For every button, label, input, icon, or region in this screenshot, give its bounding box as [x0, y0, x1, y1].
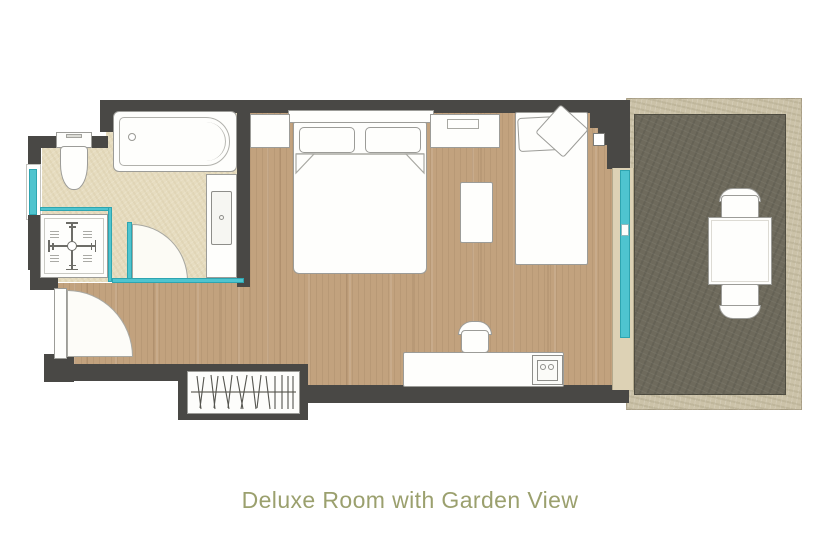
bathroom-window-glass: [29, 169, 37, 215]
wall-bathroom-divider: [237, 110, 250, 287]
minibar-cup-icon: [540, 364, 546, 370]
minibar-cup-icon: [548, 364, 554, 370]
valve-label-marks: [50, 231, 59, 238]
bathroom-door-leaf: [127, 222, 132, 282]
shower-glass-side: [108, 207, 112, 282]
hanger-rail-icon: [188, 372, 299, 413]
wall-niche: [593, 133, 605, 146]
minibar-sink-basin: [537, 360, 558, 381]
wall-right-step-a: [590, 100, 630, 128]
desk-chair-seat: [461, 330, 489, 353]
entrance-door-leaf: [54, 288, 67, 359]
ottoman: [460, 182, 493, 243]
console-tray: [447, 119, 479, 129]
wall-right-step-c: [607, 143, 630, 169]
plan-caption: Deluxe Room with Garden View: [0, 487, 820, 514]
bathtub-faucet-icon: [128, 133, 136, 141]
sliding-glass-door: [620, 170, 630, 338]
valve-label-marks: [50, 255, 59, 262]
shower-glass-top: [40, 207, 112, 211]
valve-label-marks: [83, 231, 92, 238]
bathroom-glass-partition: [112, 278, 244, 283]
wall-bottom-right: [298, 385, 629, 403]
nightstand: [250, 114, 290, 148]
wall-bottom-left: [58, 364, 188, 381]
wardrobe-interior: [187, 371, 300, 414]
valve-label-marks: [83, 255, 92, 262]
floor-plan: Deluxe Room with Garden View: [0, 0, 820, 560]
toilet-tank-detail: [66, 134, 82, 138]
duvet-fold-icon: [293, 150, 427, 176]
terrace-table-inner: [711, 220, 769, 282]
shower-valve-icon: [44, 218, 100, 274]
sink-drain-icon: [219, 215, 224, 220]
sliding-door-handle: [621, 224, 629, 236]
